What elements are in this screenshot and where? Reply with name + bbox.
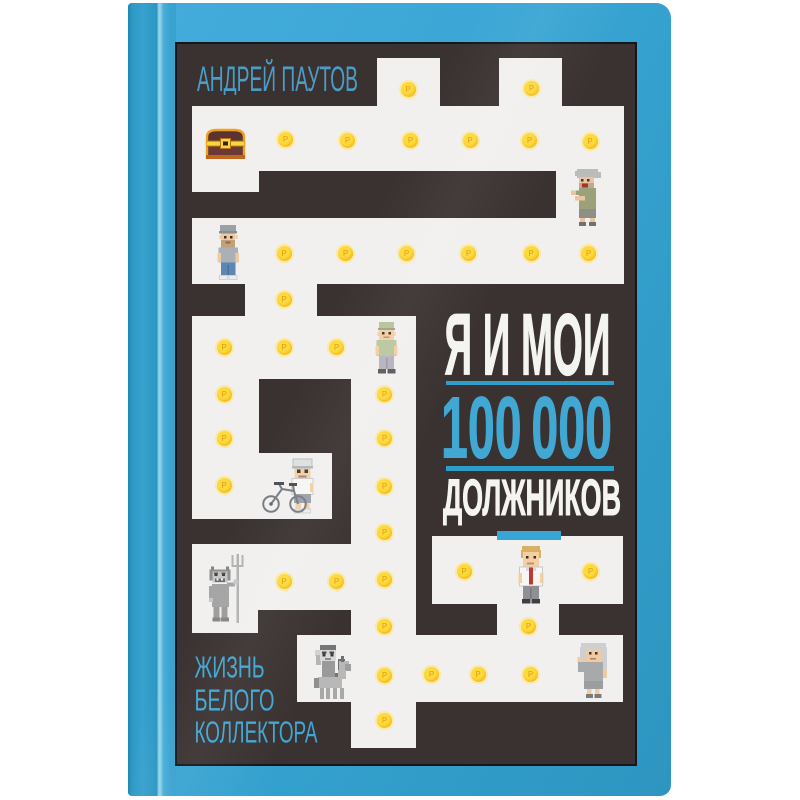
svg-text:Я И МОИ: Я И МОИ: [445, 308, 611, 378]
svg-text:ДОЛЖНИКОВ: ДОЛЖНИКОВ: [443, 472, 621, 526]
svg-text:АНДРЕЙ ПАУТОВ: АНДРЕЙ ПАУТОВ: [197, 59, 358, 95]
svg-text:100 000: 100 000: [441, 392, 612, 462]
svg-text:ЖИЗНЬ: ЖИЗНЬ: [195, 650, 265, 682]
svg-text:КОЛЛЕКТОРА: КОЛЛЕКТОРА: [195, 715, 318, 747]
svg-text:БЕЛОГО: БЕЛОГО: [195, 683, 275, 715]
